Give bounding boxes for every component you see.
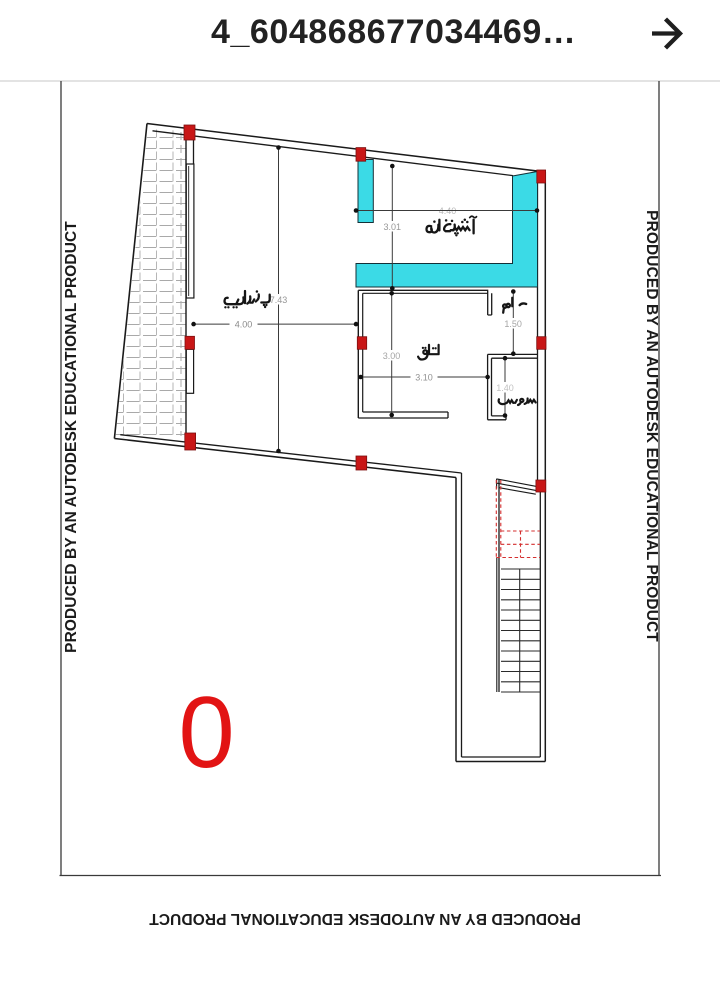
- svg-text:7.43: 7.43: [270, 295, 288, 305]
- svg-text:1.50: 1.50: [504, 319, 522, 329]
- svg-text:4.00: 4.00: [235, 319, 253, 329]
- svg-text:3.01: 3.01: [384, 222, 402, 232]
- svg-text:1.40: 1.40: [496, 383, 514, 393]
- svg-text:3.10: 3.10: [415, 372, 433, 382]
- svg-text:3.00: 3.00: [383, 351, 401, 361]
